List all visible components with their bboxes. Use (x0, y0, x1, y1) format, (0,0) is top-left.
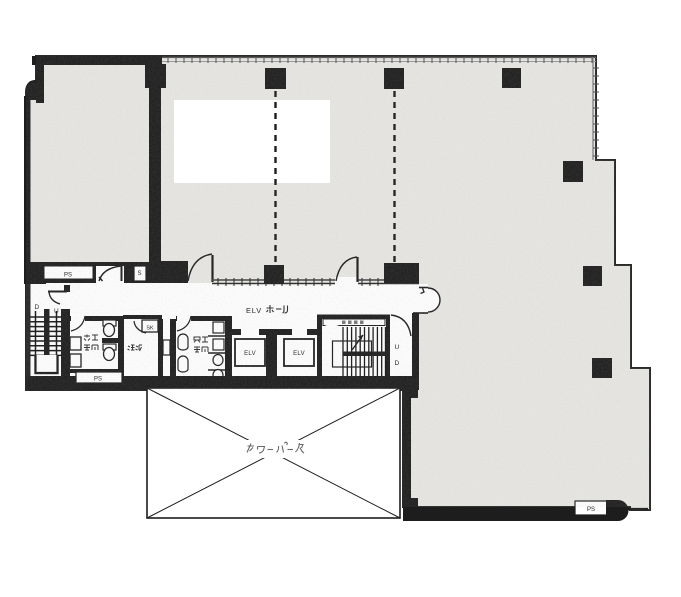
svg-text:PS: PS (587, 507, 595, 513)
